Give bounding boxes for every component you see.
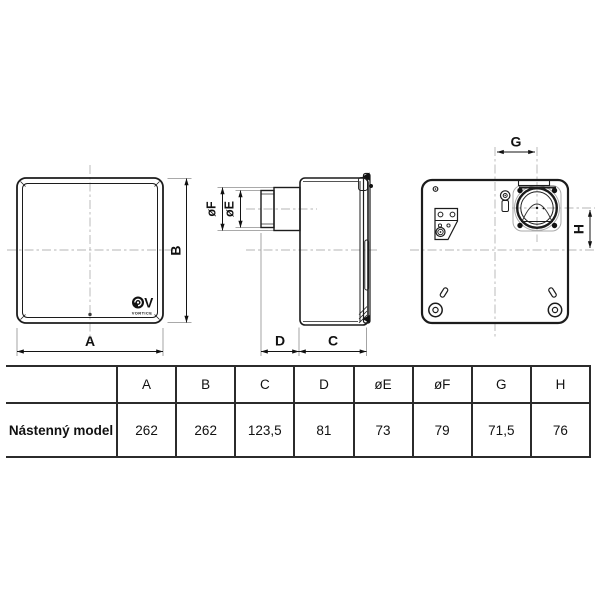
dim-label-C: C — [328, 333, 338, 349]
model-row-label: Nástenný model — [6, 403, 117, 457]
mounting-hole-left — [429, 303, 442, 316]
dim-label-oE: øE — [223, 201, 237, 217]
value-C: 123,5 — [235, 403, 294, 457]
table-corner-cell — [6, 366, 117, 403]
dimension-oE: øE — [223, 191, 241, 228]
dim-label-A: A — [85, 333, 95, 349]
value-A: 262 — [117, 403, 176, 457]
side-screw-dot — [369, 184, 373, 188]
flange-screw — [552, 223, 557, 228]
dim-label-H: H — [571, 224, 587, 234]
rear-view-drawing: G H — [410, 134, 595, 338]
value-G: 71,5 — [472, 403, 531, 457]
vortice-logo: V VORTICE — [132, 296, 154, 316]
value-H: 76 — [531, 403, 590, 457]
value-oE: 73 — [354, 403, 413, 457]
flange-screw — [552, 188, 557, 193]
col-header-G: G — [472, 366, 531, 403]
flange-screw — [517, 188, 522, 193]
technical-drawing-page: V VORTICE A B — [0, 0, 600, 600]
dimension-D: D — [261, 333, 299, 352]
dim-label-D: D — [275, 333, 285, 349]
value-oF: 79 — [413, 403, 472, 457]
col-header-oE: øE — [354, 366, 413, 403]
dimension-A: A — [17, 328, 163, 356]
flange-screw — [517, 223, 522, 228]
value-B: 262 — [176, 403, 235, 457]
col-header-A: A — [117, 366, 176, 403]
dimension-G: G — [497, 134, 535, 153]
dimension-oF: øF — [205, 188, 223, 231]
col-header-D: D — [294, 366, 353, 403]
col-header-H: H — [531, 366, 590, 403]
dimension-H: H — [571, 210, 591, 248]
keyhole-slot-right — [548, 287, 557, 298]
col-header-B: B — [176, 366, 235, 403]
dimensions-table: A B C D øE øF G H Nástenný model 262 262… — [6, 365, 591, 458]
table-row: Nástenný model 262 262 123,5 81 73 79 71… — [6, 403, 590, 457]
mounting-hole-right — [548, 303, 561, 316]
dim-label-B: B — [168, 245, 184, 255]
side-body-outline — [300, 178, 368, 325]
vortice-v-mark: V — [144, 296, 153, 311]
cable-bracket — [435, 209, 458, 240]
value-D: 81 — [294, 403, 353, 457]
vortice-wordmark: VORTICE — [132, 311, 153, 316]
dim-label-G: G — [511, 134, 522, 150]
dim-label-oF: øF — [205, 201, 219, 217]
front-panel-dot — [88, 313, 91, 316]
front-view-drawing: V VORTICE A B — [7, 165, 192, 356]
col-header-C: C — [235, 366, 294, 403]
dimension-B: B — [168, 179, 192, 323]
col-header-oF: øF — [413, 366, 472, 403]
dimension-C: C — [299, 333, 367, 352]
side-view-drawing: øF øE D C — [205, 173, 378, 357]
duct-outlet — [501, 180, 562, 231]
keyhole-slot-left — [439, 287, 448, 298]
